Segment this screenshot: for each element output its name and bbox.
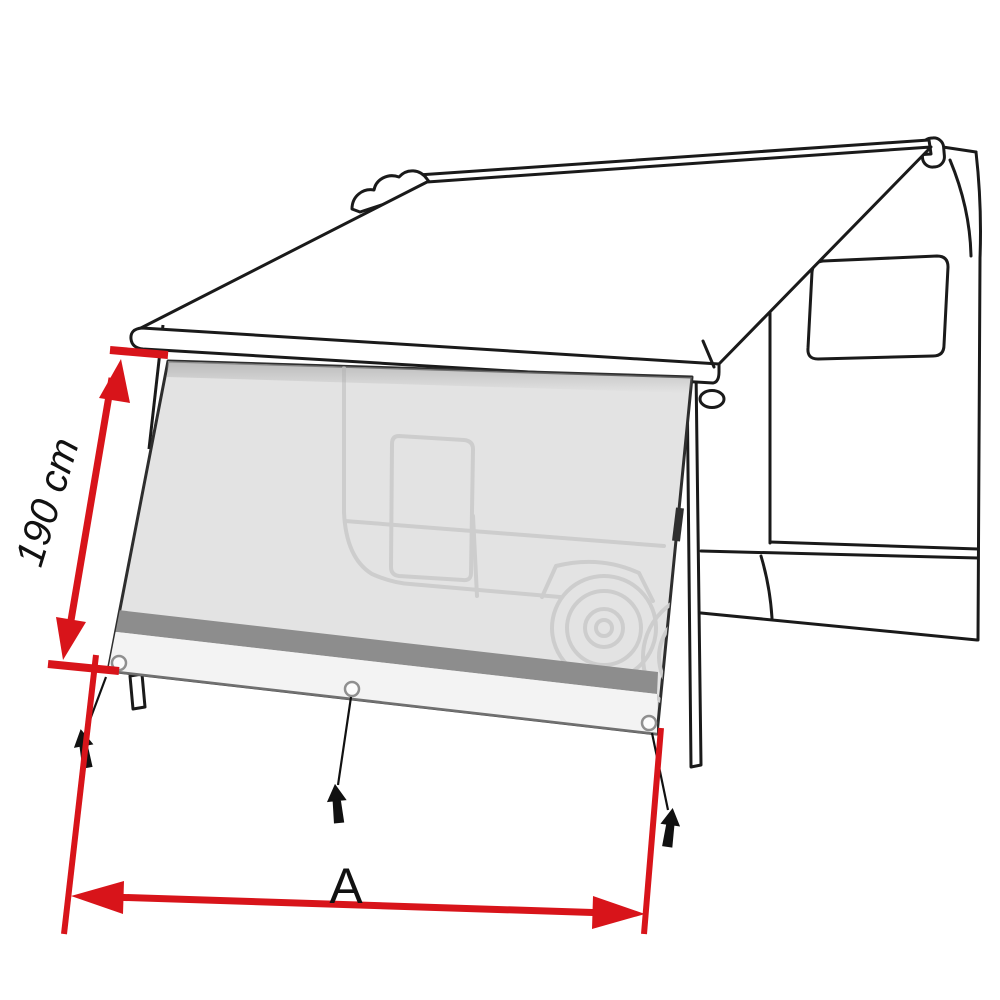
van-beltline-lower	[701, 551, 978, 558]
awning-diagram-canvas: 190 cm A	[0, 0, 1000, 1000]
grommet-icon	[642, 716, 656, 730]
van-window	[808, 256, 948, 359]
panel-strap	[676, 508, 680, 541]
guy-line	[338, 697, 351, 785]
van-body-lines	[701, 542, 978, 640]
dimension-arrowhead-up	[99, 359, 130, 403]
van-wheel-arch-line	[761, 556, 772, 618]
dimension-tick-top	[110, 350, 168, 355]
grommet-icon	[345, 682, 359, 696]
sketch-rear-wheel-arc-inner	[659, 609, 755, 705]
van-skirt-line	[701, 613, 977, 640]
dimension-extension-right	[644, 728, 661, 934]
height-dimension-label: 190 cm	[7, 433, 87, 571]
awning-leg-right	[687, 370, 701, 767]
ground-peg-icon	[327, 785, 347, 822]
awning-diagram: 190 cm A	[0, 0, 1000, 1000]
door-handle	[700, 391, 724, 408]
van-rear-corner-inner	[950, 160, 971, 256]
ground-peg-icon	[659, 809, 680, 847]
van-beltline-upper	[770, 542, 978, 549]
width-dimension-label: A	[329, 858, 363, 914]
side-panel	[108, 361, 771, 734]
van-rear-corner-outer	[976, 152, 981, 640]
dimension-arrow-shaft	[67, 378, 112, 644]
dimension-arrowhead-down	[56, 617, 86, 660]
dimension-arrowhead-right	[592, 896, 645, 929]
leg-foot-left	[130, 674, 145, 709]
dimension-arrowhead-left	[71, 881, 124, 914]
